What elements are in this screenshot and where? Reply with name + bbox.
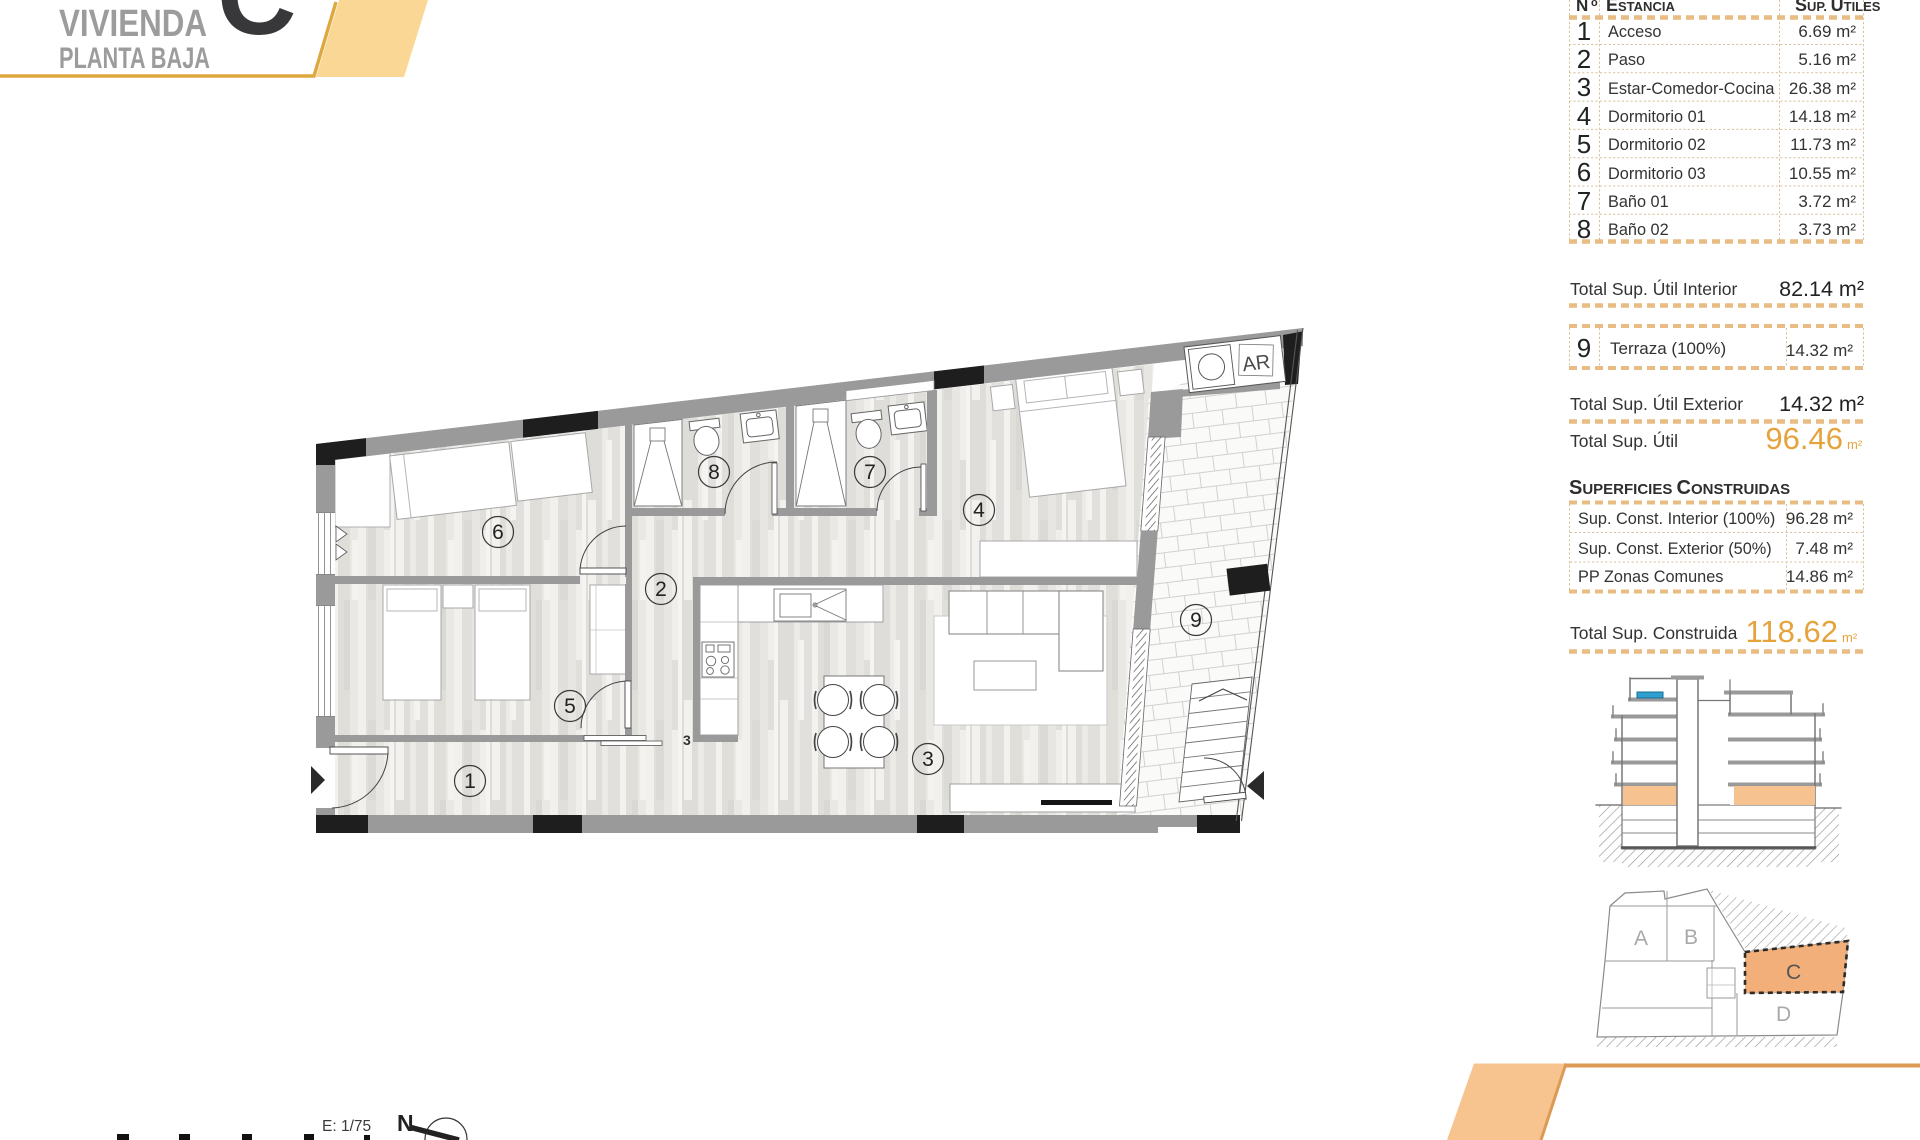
svg-text:Total Sup. Construida: Total Sup. Construida bbox=[1570, 623, 1738, 643]
svg-text:Sup. Const. Exterior (50%): Sup. Const. Exterior (50%) bbox=[1578, 540, 1772, 558]
svg-text:3.73 m²: 3.73 m² bbox=[1798, 220, 1856, 239]
svg-text:Paso: Paso bbox=[1608, 51, 1645, 69]
svg-text:m²: m² bbox=[1847, 437, 1863, 452]
svg-text:8: 8 bbox=[1577, 214, 1591, 244]
svg-text:3: 3 bbox=[1577, 72, 1591, 102]
svg-text:Dormitorio 01: Dormitorio 01 bbox=[1608, 108, 1706, 126]
svg-text:Total Sup. Útil Exterior: Total Sup. Útil Exterior bbox=[1570, 393, 1743, 414]
svg-text:82.14 m²: 82.14 m² bbox=[1779, 277, 1864, 301]
svg-text:96.46: 96.46 bbox=[1765, 421, 1843, 456]
svg-text:11.73 m²: 11.73 m² bbox=[1790, 135, 1856, 154]
svg-text:PP Zonas Comunes: PP Zonas Comunes bbox=[1578, 568, 1723, 586]
svg-text:D: D bbox=[1776, 1003, 1791, 1026]
svg-text:C: C bbox=[1786, 961, 1801, 984]
svg-text:10.55 m²: 10.55 m² bbox=[1789, 164, 1856, 183]
svg-text:96.28 m²: 96.28 m² bbox=[1786, 509, 1853, 528]
svg-text:N: N bbox=[1576, 0, 1588, 15]
svg-text:26.38 m²: 26.38 m² bbox=[1789, 79, 1856, 98]
svg-text:5: 5 bbox=[564, 695, 576, 718]
svg-text:Baño 01: Baño 01 bbox=[1608, 193, 1669, 211]
svg-text:Sup. Const. Interior (100%): Sup. Const. Interior (100%) bbox=[1578, 510, 1775, 528]
svg-text:Total Sup. Útil: Total Sup. Útil bbox=[1570, 430, 1678, 451]
svg-text:14.32 m²: 14.32 m² bbox=[1786, 341, 1853, 360]
svg-text:4: 4 bbox=[973, 499, 985, 522]
svg-text:Dormitorio 03: Dormitorio 03 bbox=[1608, 165, 1706, 183]
svg-text:C: C bbox=[217, 0, 296, 58]
svg-text:2: 2 bbox=[655, 578, 667, 601]
svg-text:5: 5 bbox=[1577, 129, 1591, 159]
svg-text:7.48 m²: 7.48 m² bbox=[1795, 539, 1853, 558]
svg-text:Terraza (100%): Terraza (100%) bbox=[1610, 339, 1726, 358]
svg-text:Total Sup. Útil Interior: Total Sup. Útil Interior bbox=[1570, 278, 1737, 299]
svg-text:o: o bbox=[1591, 0, 1598, 9]
svg-text:1: 1 bbox=[464, 770, 476, 793]
svg-text:7: 7 bbox=[864, 461, 876, 484]
svg-text:N: N bbox=[397, 1110, 414, 1136]
svg-text:2: 2 bbox=[1577, 44, 1591, 74]
svg-text:5.16 m²: 5.16 m² bbox=[1798, 50, 1856, 69]
svg-text:3: 3 bbox=[683, 732, 691, 748]
svg-text:118.62: 118.62 bbox=[1745, 614, 1838, 649]
svg-text:8: 8 bbox=[708, 461, 720, 484]
svg-text:7: 7 bbox=[1577, 186, 1591, 216]
svg-text:Estar-Comedor-Cocina: Estar-Comedor-Cocina bbox=[1608, 80, 1775, 98]
svg-text:3: 3 bbox=[922, 748, 934, 771]
svg-text:B: B bbox=[1684, 926, 1698, 949]
svg-text:6: 6 bbox=[492, 521, 504, 544]
svg-text:PLANTA BAJA: PLANTA BAJA bbox=[59, 42, 210, 75]
svg-text:Acceso: Acceso bbox=[1608, 23, 1661, 41]
svg-text:Dormitorio 02: Dormitorio 02 bbox=[1608, 136, 1706, 154]
svg-text:9: 9 bbox=[1577, 333, 1591, 363]
svg-text:6: 6 bbox=[1577, 157, 1591, 187]
svg-text:9: 9 bbox=[1190, 609, 1202, 632]
svg-text:Baño 02: Baño 02 bbox=[1608, 221, 1669, 239]
svg-text:14.18 m²: 14.18 m² bbox=[1789, 107, 1856, 126]
svg-text:14.86 m²: 14.86 m² bbox=[1786, 567, 1853, 586]
svg-text:4: 4 bbox=[1577, 101, 1591, 131]
svg-text:3.72 m²: 3.72 m² bbox=[1798, 192, 1856, 211]
svg-text:SUP. UTILES: SUP. UTILES bbox=[1795, 0, 1881, 15]
svg-text:AR: AR bbox=[1241, 351, 1271, 376]
svg-text:14.32 m²: 14.32 m² bbox=[1779, 392, 1864, 416]
svg-text:ESTANCIA: ESTANCIA bbox=[1606, 0, 1675, 15]
svg-text:1: 1 bbox=[1577, 16, 1591, 46]
svg-text:m²: m² bbox=[1842, 630, 1858, 645]
svg-text:SUPERFICIES CONSTRUIDAS: SUPERFICIES CONSTRUIDAS bbox=[1569, 477, 1790, 499]
svg-text:VIVIENDA: VIVIENDA bbox=[59, 3, 207, 45]
svg-text:6.69 m²: 6.69 m² bbox=[1798, 22, 1856, 41]
svg-text:E: 1/75: E: 1/75 bbox=[322, 1118, 371, 1135]
svg-text:A: A bbox=[1634, 927, 1648, 950]
